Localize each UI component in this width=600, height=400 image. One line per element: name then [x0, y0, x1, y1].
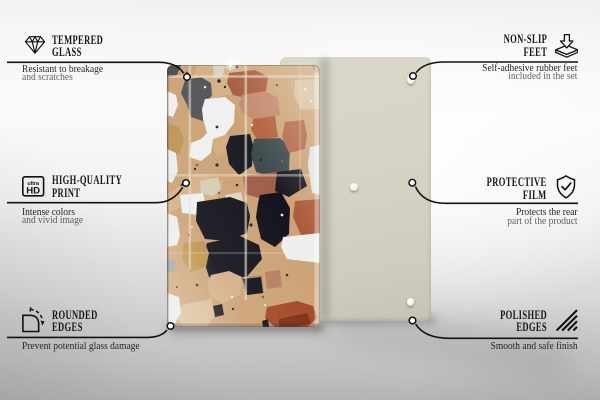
svg-text:HD: HD [26, 186, 40, 197]
